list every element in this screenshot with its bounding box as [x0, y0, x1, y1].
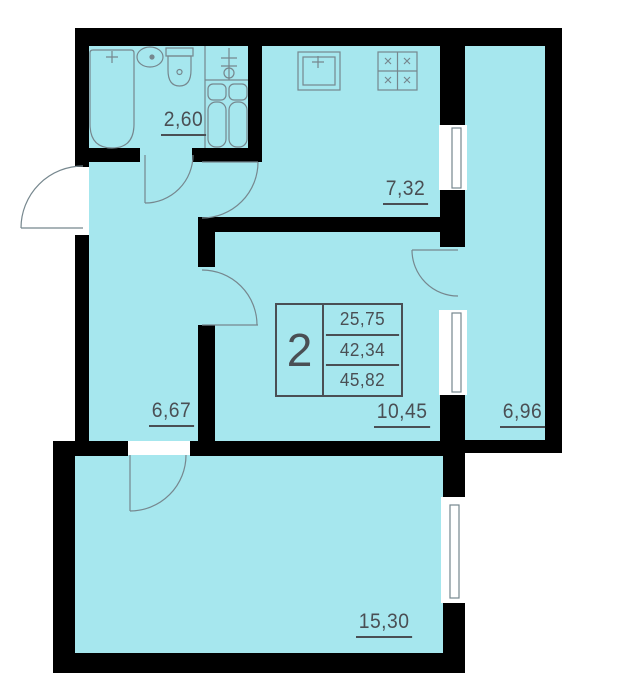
area-apartment-value: 42,34 [326, 336, 399, 367]
wall-bottom [53, 653, 465, 673]
area-living-value: 25,75 [326, 305, 399, 336]
room-fill-balcony [465, 46, 545, 440]
wall-top [75, 28, 562, 46]
wall-balcony-left-upper [440, 46, 465, 125]
window-living-room [441, 497, 469, 603]
room-fill-balcony-door-opening [440, 247, 465, 310]
unit-number: 2 [277, 305, 324, 395]
wall-bathroom-right [248, 46, 262, 162]
wall-living-right-lower [443, 603, 465, 673]
area-label-hallway: 6,67 [149, 399, 194, 427]
area-label-bathroom: 2,60 [161, 108, 206, 136]
area-label-kitchen: 7,32 [383, 177, 428, 205]
wall-mid-left [53, 441, 128, 456]
wall-room-left-lower [198, 325, 215, 443]
wall-left-lower [53, 441, 75, 673]
area-label-room: 10,45 [374, 400, 430, 428]
wall-right-outer [545, 28, 562, 453]
floor-plan: 2,60 7,32 6,67 10,45 6,96 15,30 2 25,75 … [0, 0, 635, 700]
wall-bathroom-bottom-right [192, 148, 255, 162]
area-label-living-room: 15,30 [356, 610, 412, 638]
wall-mid-right [190, 441, 443, 456]
wall-room-left-upper [198, 217, 215, 267]
area-total-value: 45,82 [326, 366, 399, 395]
wall-left-upper [75, 28, 89, 167]
wall-bathroom-bottom-left [88, 148, 140, 162]
wall-left-mid [75, 235, 89, 443]
area-label-balcony: 6,96 [500, 400, 545, 428]
area-summary: 25,75 42,34 45,82 [324, 305, 401, 395]
entry-door-arc [21, 166, 83, 228]
apartment-info-box: 2 25,75 42,34 45,82 [275, 303, 403, 397]
wall-living-right-upper [443, 441, 465, 497]
entry-door-icon [21, 166, 83, 228]
window-kitchen [439, 125, 467, 190]
window-room [439, 310, 467, 395]
wall-kitchen-bottom [198, 217, 443, 232]
wall-balcony-left-mid [440, 190, 465, 247]
